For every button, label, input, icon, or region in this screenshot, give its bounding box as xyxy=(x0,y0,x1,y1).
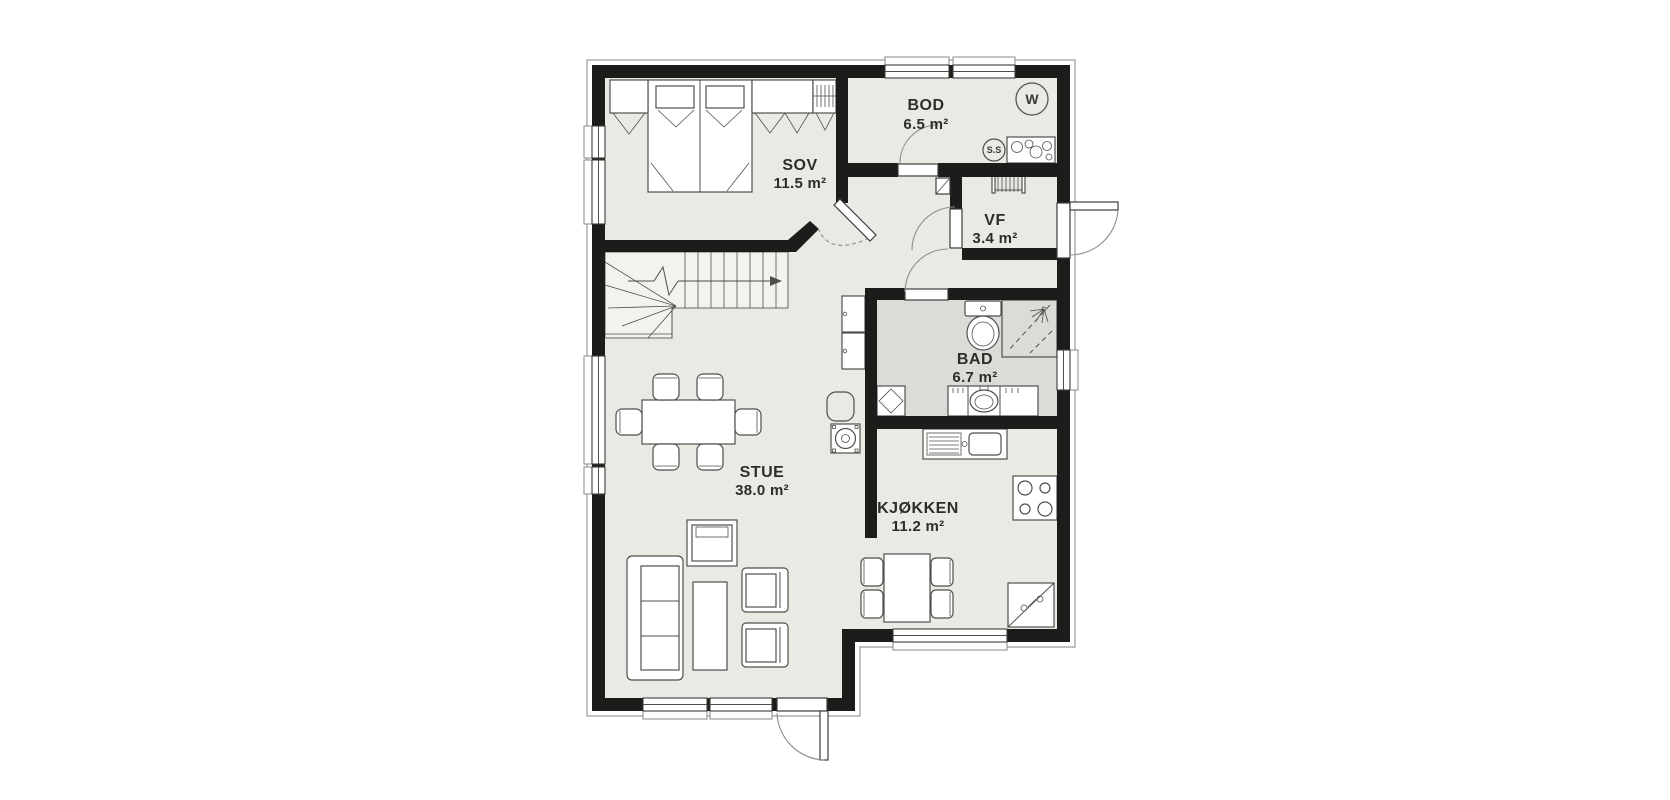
wood-stove-symbol xyxy=(831,424,860,453)
room-label-vf: VF xyxy=(984,212,1005,229)
washing-machine-label: W xyxy=(1025,91,1039,107)
room-area-kjokken: 11.2 m² xyxy=(892,518,945,535)
room-area-bod: 6.5 m² xyxy=(903,116,948,133)
room-label-bad: BAD xyxy=(957,351,993,368)
room-area-vf: 3.4 m² xyxy=(972,230,1017,247)
room-label-kjokken: KJØKKEN xyxy=(877,500,959,517)
room-label-stue: STUE xyxy=(740,464,785,481)
floor-plan-page: W S.S xyxy=(0,0,1670,800)
floor-drain-symbol xyxy=(877,386,905,416)
sofa-symbol xyxy=(627,556,683,680)
coffee-table-symbol xyxy=(693,582,727,670)
window-living-left xyxy=(584,356,605,494)
window-bathroom xyxy=(1057,350,1078,390)
corner-cabinet-symbol xyxy=(1008,583,1054,627)
bathroom-vanity-symbol xyxy=(948,386,1038,416)
floor-plan-drawing: W S.S xyxy=(0,0,1670,800)
tv-bench-symbol xyxy=(687,520,737,566)
door-terrace xyxy=(777,698,828,760)
hall-cabinet-symbol xyxy=(842,296,865,369)
window-bedroom xyxy=(584,126,605,224)
toilet-symbol xyxy=(965,301,1001,350)
double-bed-symbol xyxy=(648,80,752,192)
window-living-bottom xyxy=(643,698,772,719)
water-heater-label: S.S xyxy=(987,145,1002,155)
room-area-stue: 38.0 m² xyxy=(735,482,789,499)
door-entrance xyxy=(1057,202,1118,258)
room-area-sov: 11.5 m² xyxy=(774,175,827,192)
room-label-sov: SOV xyxy=(782,157,817,174)
utility-counter-symbol xyxy=(1007,137,1055,163)
shaft-symbol xyxy=(936,178,950,194)
kitchen-sink-symbol xyxy=(923,429,1007,459)
stove-symbol xyxy=(1013,476,1057,520)
room-area-bad: 6.7 m² xyxy=(952,369,997,386)
window-kitchen xyxy=(893,629,1007,650)
room-label-bod: BOD xyxy=(907,97,944,114)
